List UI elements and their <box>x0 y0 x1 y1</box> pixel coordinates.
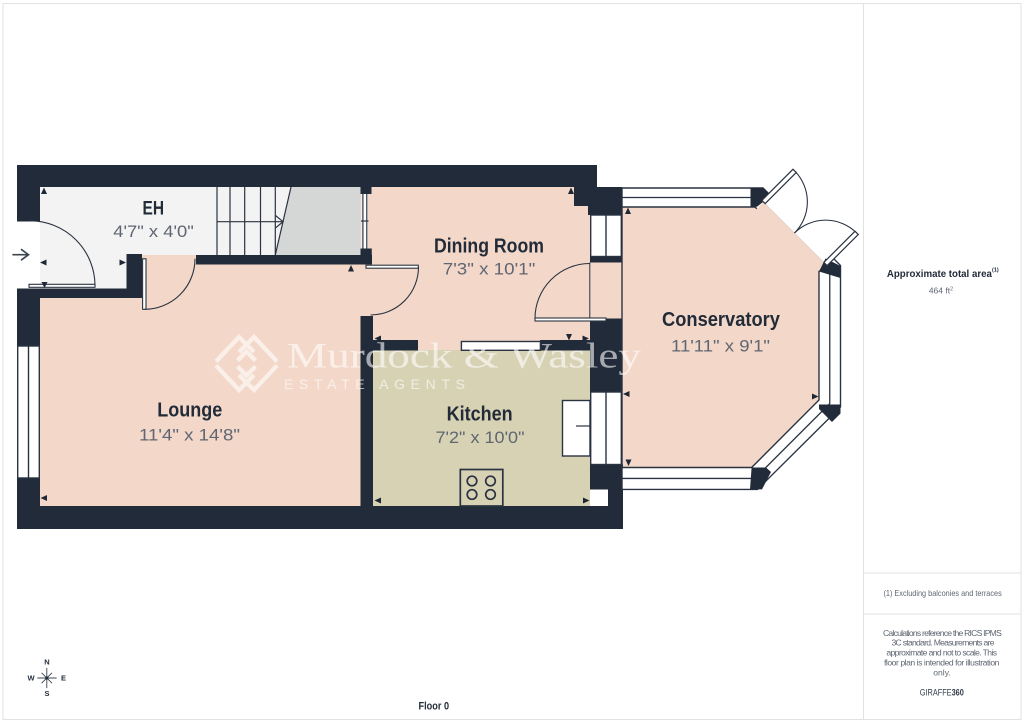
svg-text:Murdock & Wasley: Murdock & Wasley <box>287 336 641 376</box>
svg-text:Lounge: Lounge <box>157 399 222 422</box>
svg-text:(1): (1) <box>992 268 999 274</box>
svg-text:7'2" x 10'0": 7'2" x 10'0" <box>436 428 525 447</box>
svg-text:Kitchen: Kitchen <box>447 403 513 426</box>
svg-text:Conservatory: Conservatory <box>662 308 781 331</box>
svg-text:floor plan is intended for ill: floor plan is intended for illustration <box>884 658 1000 668</box>
svg-text:(1) Excluding balconies and te: (1) Excluding balconies and terraces <box>883 588 1001 598</box>
svg-text:W: W <box>27 674 35 683</box>
svg-text:3C standard. Measurements are: 3C standard. Measurements are <box>892 638 995 648</box>
svg-text:Approximate total area: Approximate total area <box>887 268 992 280</box>
svg-text:11'4" x 14'8": 11'4" x 14'8" <box>139 426 240 445</box>
svg-text:GIRAFFE360: GIRAFFE360 <box>920 687 964 698</box>
svg-text:7'3" x 10'1": 7'3" x 10'1" <box>443 260 536 279</box>
svg-text:4'7" x 4'0": 4'7" x 4'0" <box>113 222 194 241</box>
svg-text:only.: only. <box>933 668 951 678</box>
svg-text:EH: EH <box>143 199 165 220</box>
svg-text:Floor 0: Floor 0 <box>419 701 450 713</box>
svg-text:approximate and not to scale.: approximate and not to scale. This <box>886 648 997 658</box>
svg-text:Dining Room: Dining Room <box>434 235 544 258</box>
svg-text:N: N <box>44 657 49 666</box>
svg-text:11'11" x 9'1": 11'11" x 9'1" <box>671 337 770 356</box>
svg-text:S: S <box>44 689 49 698</box>
svg-text:E: E <box>61 674 66 683</box>
svg-text:464 ft2: 464 ft2 <box>929 286 953 296</box>
svg-text:Calculations reference the RIC: Calculations reference the RICS IPMS <box>883 628 1002 638</box>
